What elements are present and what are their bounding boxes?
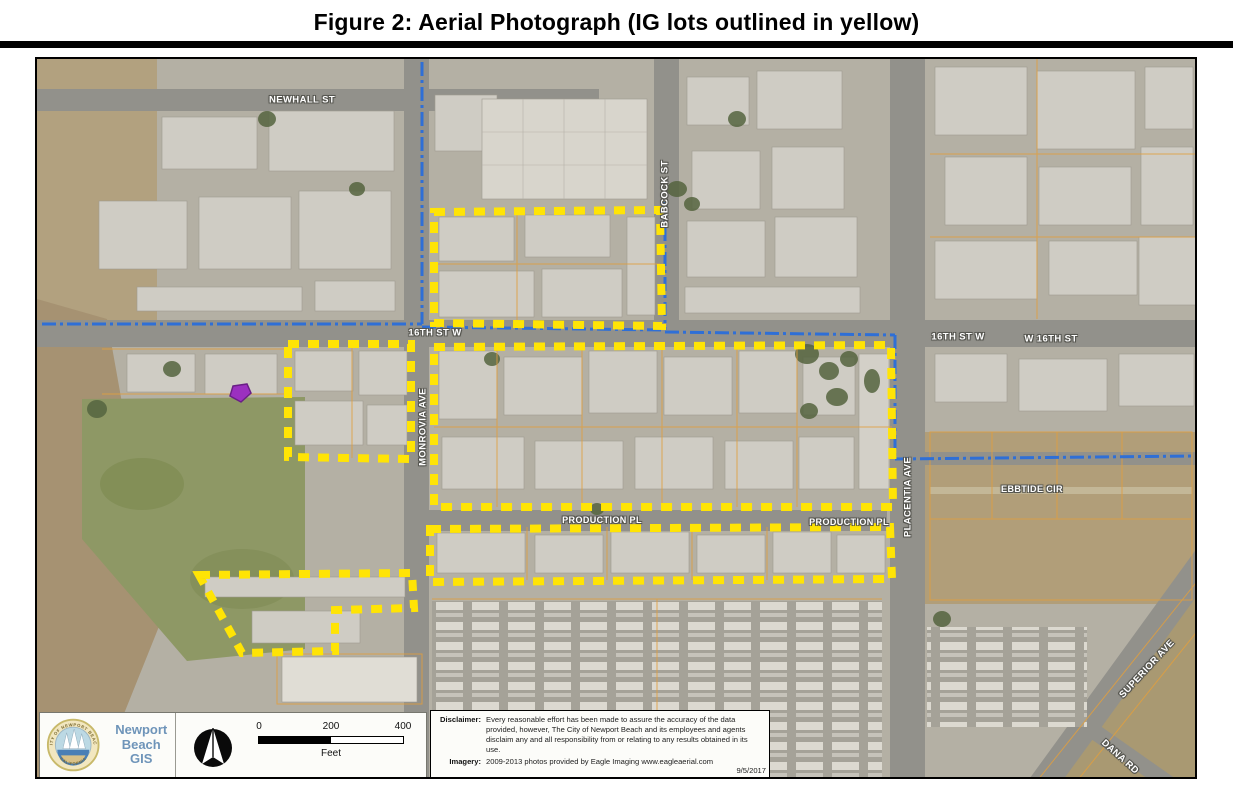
street-label-placentia-ave: PLACENTIA AVE: [903, 457, 914, 537]
scale-tick-200: 200: [323, 721, 340, 732]
north-arrow-icon: [190, 720, 236, 772]
figure-title: Figure 2: Aerial Photograph (IG lots out…: [0, 9, 1233, 36]
street-label-production-pl-west: PRODUCTION PL: [562, 515, 642, 525]
street-label-monrovia-ave: MONROVIA AVE: [418, 388, 429, 466]
imagery-row: Imagery: 2009-2013 photos provided by Ea…: [435, 757, 764, 767]
street-label-w-16th-st: W 16TH ST: [1024, 334, 1077, 345]
title-rule: [0, 41, 1233, 48]
street-label-16th-st-w-west: 16TH ST W: [408, 328, 461, 339]
scale-unit: Feet: [258, 748, 404, 759]
street-label-ebbtide-cir: EBBTIDE CIR: [1001, 484, 1063, 494]
disclaimer-row: Disclaimer: Every reasonable effort has …: [435, 715, 764, 754]
street-label-16th-st-w-east: 16TH ST W: [931, 332, 984, 343]
imagery-text: 2009-2013 photos provided by Eagle Imagi…: [486, 757, 764, 767]
disclaimer-text: Every reasonable effort has been made to…: [486, 715, 764, 754]
document-page: Figure 2: Aerial Photograph (IG lots out…: [0, 0, 1233, 788]
street-label-babcock-st: BABCOCK ST: [660, 160, 671, 227]
org-line-2: Beach: [107, 738, 175, 753]
street-label-production-pl-east: PRODUCTION PL: [809, 517, 889, 527]
imagery-label: Imagery:: [435, 757, 481, 767]
map-frame: NEWHALL ST 16TH ST W 16TH ST W W 16TH ST…: [35, 57, 1197, 779]
map-date: 9/5/2017: [736, 766, 766, 776]
org-line-3: GIS: [107, 752, 175, 767]
scale-bar-graphic: [258, 736, 404, 744]
street-label-newhall-st: NEWHALL ST: [269, 95, 335, 106]
gis-logo-section: CITY OF NEWPORT BEACH CALIFORNIA Newport…: [40, 713, 176, 777]
scale-bar-filled: [259, 737, 331, 743]
disclaimer-panel: Disclaimer: Every reasonable effort has …: [430, 710, 770, 778]
org-line-1: Newport: [107, 723, 175, 738]
newport-beach-seal: CITY OF NEWPORT BEACH CALIFORNIA: [46, 716, 100, 774]
gis-org-name: Newport Beach GIS: [107, 723, 175, 767]
scale-tick-0: 0: [256, 721, 262, 732]
scale-section: 0 200 400 Feet: [176, 713, 426, 777]
aerial-photo: [37, 59, 1197, 779]
legend-panel: CITY OF NEWPORT BEACH CALIFORNIA Newport…: [39, 712, 427, 778]
disclaimer-label: Disclaimer:: [435, 715, 481, 754]
scale-tick-400: 400: [395, 721, 412, 732]
